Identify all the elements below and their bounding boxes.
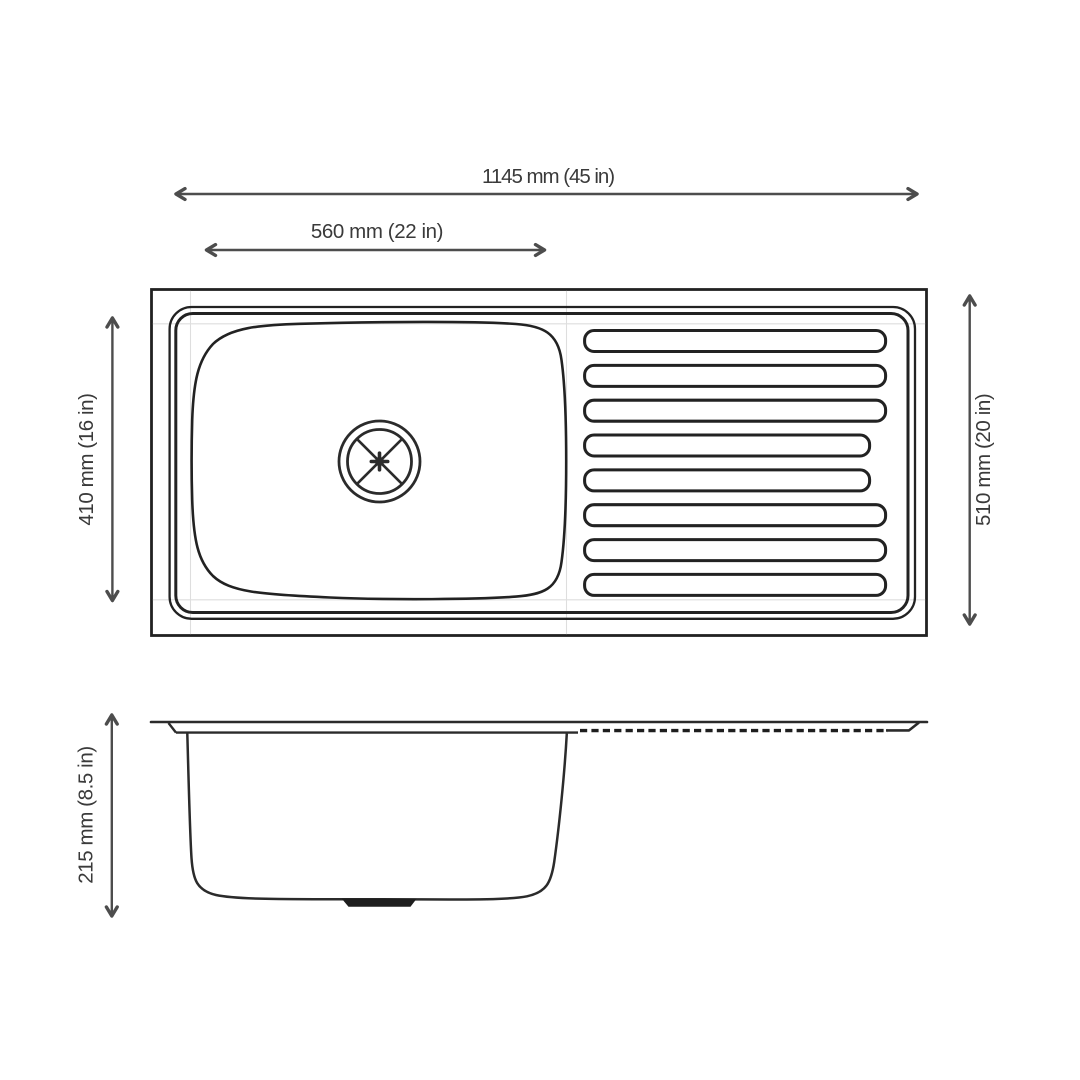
svg-text:1145 mm (45 in): 1145 mm (45 in): [482, 165, 614, 188]
svg-text:410 mm (16 in): 410 mm (16 in): [75, 393, 98, 525]
svg-text:510 mm (20 in): 510 mm (20 in): [972, 394, 995, 526]
svg-text:215 mm (8.5 in): 215 mm (8.5 in): [75, 746, 98, 884]
svg-text:560 mm (22 in): 560 mm (22 in): [311, 220, 443, 243]
